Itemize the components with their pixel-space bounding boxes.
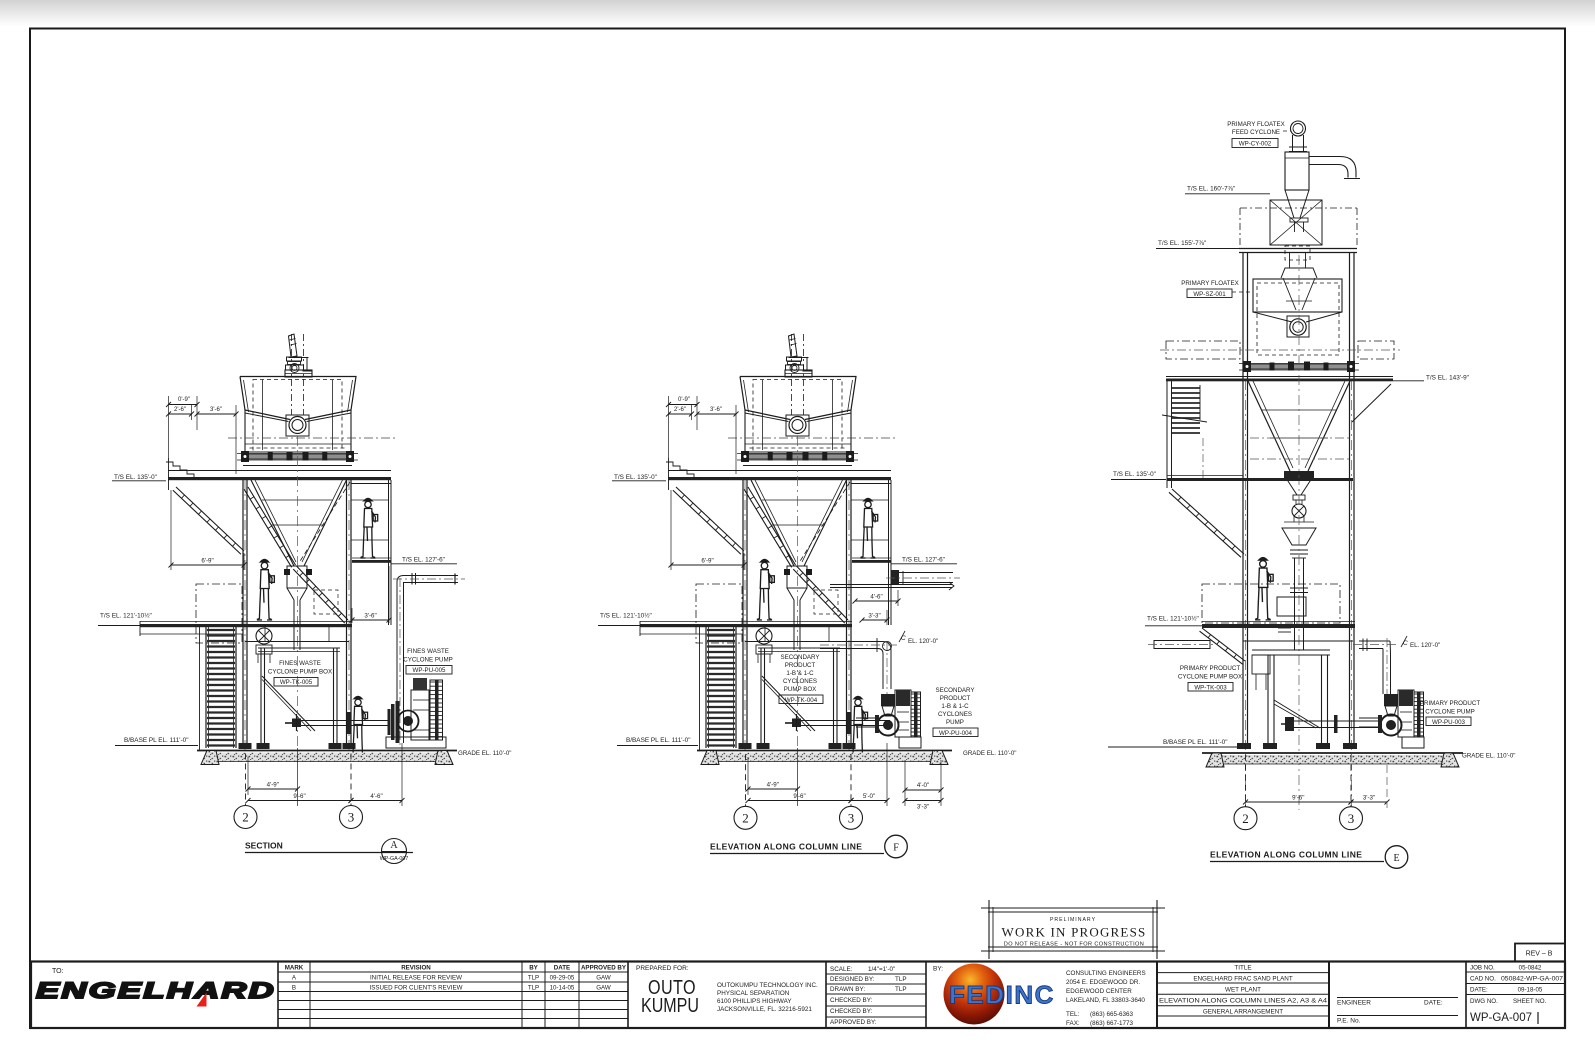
svg-text:GRADE EL. 110'-0": GRADE EL. 110'-0" [963,750,1016,757]
svg-text:CAD NO.: CAD NO. [1470,976,1496,983]
svg-text:(863) 667-1773: (863) 667-1773 [1090,1020,1134,1027]
svg-text:T/S EL. 127'-6": T/S EL. 127'-6" [402,557,445,564]
svg-text:T/S EL. 160'-7⅞": T/S EL. 160'-7⅞" [1187,186,1235,193]
svg-text:WP-CY-002: WP-CY-002 [1239,141,1272,148]
svg-text:TLP: TLP [528,975,539,982]
svg-text:CYCLONE PUMP: CYCLONE PUMP [1425,709,1475,716]
svg-text:REV – B: REV – B [1526,951,1553,958]
svg-text:GAW: GAW [596,975,611,982]
svg-text:2'-6": 2'-6" [174,407,186,413]
svg-text:09-29-05: 09-29-05 [550,975,575,982]
svg-text:B/BASE PL EL. 111'-0": B/BASE PL EL. 111'-0" [1163,739,1227,746]
svg-text:3'-3": 3'-3" [1363,795,1375,802]
svg-text:T/S EL. 135'-0": T/S EL. 135'-0" [1113,471,1156,478]
svg-text:MARK: MARK [285,965,304,972]
svg-text:10-14-05: 10-14-05 [550,985,575,992]
svg-text:ENGELHARD: ENGELHARD [36,978,276,1003]
svg-text:FINES WASTE: FINES WASTE [279,660,321,667]
svg-text:PUMP BOX: PUMP BOX [784,686,817,693]
svg-text:WP-PU-004: WP-PU-004 [939,730,973,737]
svg-text:6100 PHILLIPS HIGHWAY: 6100 PHILLIPS HIGHWAY [717,998,792,1005]
svg-text:WP-TK-004: WP-TK-004 [785,697,818,704]
svg-text:WP-PU-005: WP-PU-005 [412,667,446,674]
svg-text:05-0842: 05-0842 [1519,965,1542,972]
svg-text:9'-6": 9'-6" [793,793,805,800]
svg-text:09-18-05: 09-18-05 [1518,987,1543,994]
svg-text:PREPARED FOR:: PREPARED FOR: [636,965,689,972]
svg-text:REVISION: REVISION [401,965,431,972]
svg-text:LAKELAND, FL 33803-3640: LAKELAND, FL 33803-3640 [1066,997,1145,1004]
svg-text:C: C [901,635,906,642]
svg-text:3: 3 [348,810,355,825]
svg-text:PRIMARY FLOATEX: PRIMARY FLOATEX [1227,121,1284,128]
svg-text:T/S EL. 121'-10½": T/S EL. 121'-10½" [1147,615,1199,623]
svg-text:PRIMARY PRODUCT: PRIMARY PRODUCT [1420,700,1480,707]
svg-text:2'-6": 2'-6" [674,407,686,413]
svg-text:SECONDARY: SECONDARY [935,687,974,694]
svg-text:DO NOT RELEASE - NOT FOR CONST: DO NOT RELEASE - NOT FOR CONSTRUCTION [1004,942,1144,948]
svg-text:2: 2 [742,810,749,825]
svg-text:SECTION: SECTION [245,841,283,851]
svg-text:050842-WP-GA-007: 050842-WP-GA-007 [1501,977,1564,983]
svg-text:PRELIMINARY: PRELIMINARY [1050,917,1096,923]
svg-text:EDGEWOOD CENTER: EDGEWOOD CENTER [1066,988,1132,995]
svg-text:0'-9": 0'-9" [178,397,190,403]
svg-text:CONSULTING ENGINEERS: CONSULTING ENGINEERS [1066,970,1146,977]
svg-text:9'-6": 9'-6" [293,793,305,800]
svg-text:ELEVATION ALONG COLUMN LINES A: ELEVATION ALONG COLUMN LINES A2, A3 & A4 [1159,998,1328,1005]
svg-text:T/S EL. 155'-7⅞": T/S EL. 155'-7⅞" [1158,240,1206,247]
svg-text:A: A [390,840,398,851]
svg-text:0'-9": 0'-9" [678,397,690,403]
svg-text:SECONDARY: SECONDARY [780,654,819,661]
svg-text:DATE: DATE [554,965,570,972]
svg-text:INITIAL RELEASE FOR REVIEW: INITIAL RELEASE FOR REVIEW [370,975,462,982]
svg-text:TITLE: TITLE [1234,965,1251,972]
svg-text:CHECKED BY:: CHECKED BY: [830,1008,873,1015]
svg-text:GENERAL ARRANGEMENT: GENERAL ARRANGEMENT [1203,1009,1283,1016]
svg-text:WORK IN PROGRESS: WORK IN PROGRESS [1002,925,1147,940]
svg-text:3'-6": 3'-6" [210,407,222,413]
svg-text:2: 2 [1242,811,1249,826]
svg-text:PRODUCT: PRODUCT [940,695,971,702]
svg-text:DATE:: DATE: [1424,1000,1443,1007]
svg-text:FEED CYCLONE: FEED CYCLONE [1232,129,1280,136]
svg-text:ENGELHARD FRAC SAND PLANT: ENGELHARD FRAC SAND PLANT [1193,976,1293,983]
svg-text:F: F [893,843,899,854]
svg-text:T/S EL. 127'-6": T/S EL. 127'-6" [902,557,945,564]
svg-text:(863) 665-6363: (863) 665-6363 [1090,1011,1134,1018]
svg-text:APPROVED BY: APPROVED BY [581,965,627,972]
svg-text:TO:: TO: [52,968,64,975]
svg-text:4'-6": 4'-6" [870,594,882,601]
svg-text:FEDINC: FEDINC [949,982,1055,1010]
svg-text:3'-6": 3'-6" [710,407,722,413]
svg-text:CYCLONE PUMP BOX: CYCLONE PUMP BOX [268,669,332,676]
svg-text:ENGINEER: ENGINEER [1337,1000,1371,1007]
svg-text:GRADE EL. 110'-0": GRADE EL. 110'-0" [458,750,511,757]
svg-text:FINES WASTE: FINES WASTE [407,648,449,655]
svg-text:1/4"=1'-0": 1/4"=1'-0" [868,966,895,973]
svg-text:6'-9": 6'-9" [201,558,213,565]
svg-text:EL. 120'-0": EL. 120'-0" [1410,642,1440,649]
svg-text:PRIMARY FLOATEX: PRIMARY FLOATEX [1181,280,1238,287]
svg-text:PRIMARY PRODUCT: PRIMARY PRODUCT [1180,665,1240,672]
svg-text:T/S EL. 135'-0": T/S EL. 135'-0" [614,474,657,481]
svg-text:KUMPU: KUMPU [641,995,699,1017]
svg-text:4'-9": 4'-9" [267,782,279,789]
svg-text:JACKSONVILLE, FL. 32216-5921: JACKSONVILLE, FL. 32216-5921 [717,1006,812,1013]
svg-text:GAW: GAW [596,985,611,992]
svg-text:4'-9": 4'-9" [767,782,779,789]
svg-text:EL. 120'-0": EL. 120'-0" [908,638,938,645]
svg-text:T/S EL. 135'-0": T/S EL. 135'-0" [114,474,157,481]
svg-text:4'-0": 4'-0" [917,782,929,789]
svg-text:JOB NO.: JOB NO. [1470,965,1495,972]
svg-text:TLP: TLP [528,985,539,992]
svg-text:WP-SZ-001: WP-SZ-001 [1193,291,1226,298]
svg-text:CYCLONES: CYCLONES [783,678,817,685]
svg-text:B/BASE PL EL. 111'-0": B/BASE PL EL. 111'-0" [124,737,188,744]
svg-text:WP-TK-003: WP-TK-003 [1194,684,1227,691]
svg-text:E: E [1393,853,1399,864]
svg-text:2054 E. EDGEWOOD DR.: 2054 E. EDGEWOOD DR. [1066,979,1140,986]
svg-text:ELEVATION ALONG COLUMN LINE: ELEVATION ALONG COLUMN LINE [1210,850,1362,860]
svg-text:DWG NO.: DWG NO. [1470,998,1498,1005]
svg-text:DRAWN BY:: DRAWN BY: [830,986,865,993]
svg-text:CYCLONES: CYCLONES [938,711,972,718]
svg-text:B: B [292,985,296,992]
svg-text:SCALE:: SCALE: [830,966,853,973]
svg-text:CYCLONE PUMP: CYCLONE PUMP [403,657,453,664]
svg-text:BY:: BY: [933,966,943,973]
svg-text:PRODUCT: PRODUCT [785,662,816,669]
svg-text:PHYSICAL SEPARATION: PHYSICAL SEPARATION [717,990,790,997]
svg-text:WET PLANT: WET PLANT [1225,987,1261,994]
svg-text:WP-PU-003: WP-PU-003 [1432,719,1466,726]
svg-text:CYCLONE PUMP BOX: CYCLONE PUMP BOX [1178,674,1242,681]
svg-text:WP-GA-007: WP-GA-007 [1470,1012,1532,1024]
svg-text:DATE:: DATE: [1470,987,1488,994]
svg-text:FAX:: FAX: [1066,1020,1080,1027]
svg-text:C: C [1403,640,1408,647]
svg-text:4'-6": 4'-6" [370,793,382,800]
svg-text:T/S EL. 121'-10½": T/S EL. 121'-10½" [100,612,152,620]
svg-text:3'-3": 3'-3" [917,804,929,811]
svg-text:BY: BY [529,965,538,972]
svg-text:B/BASE PL EL. 111'-0": B/BASE PL EL. 111'-0" [626,737,690,744]
svg-text:CHECKED BY:: CHECKED BY: [830,997,873,1004]
svg-text:1-B & 1-C: 1-B & 1-C [941,703,969,710]
svg-text:PUMP: PUMP [946,719,964,726]
svg-text:3'-3": 3'-3" [868,613,880,620]
svg-text:TEL:: TEL: [1066,1011,1080,1018]
svg-text:APPROVED BY:: APPROVED BY: [830,1019,877,1026]
svg-text:ELEVATION ALONG COLUMN LINE: ELEVATION ALONG COLUMN LINE [710,842,862,852]
svg-text:TLP: TLP [895,986,907,993]
svg-text:TLP: TLP [895,976,907,983]
svg-text:OUTOKUMPU TECHNOLOGY INC.: OUTOKUMPU TECHNOLOGY INC. [717,982,818,989]
svg-text:5'-0": 5'-0" [863,793,875,800]
svg-text:3'-6": 3'-6" [364,613,376,620]
svg-text:GRADE EL. 110'-0": GRADE EL. 110'-0" [1462,753,1515,760]
svg-text:DESIGNED BY:: DESIGNED BY: [830,976,875,983]
svg-text:3: 3 [1348,811,1355,826]
svg-text:T/S EL. 143'-9": T/S EL. 143'-9" [1426,375,1469,382]
svg-text:6'-9": 6'-9" [701,558,713,565]
svg-text:T/S EL. 121'-10½": T/S EL. 121'-10½" [600,612,652,620]
svg-text:WP-TK-005: WP-TK-005 [280,679,313,686]
svg-text:ISSUED FOR CLIENT'S REVIEW: ISSUED FOR CLIENT'S REVIEW [370,985,463,992]
svg-text:2: 2 [242,810,249,825]
svg-text:WP-GA-007: WP-GA-007 [380,856,409,862]
svg-text:3: 3 [848,810,855,825]
svg-text:1-B & 1-C: 1-B & 1-C [786,670,814,677]
svg-text:9'-6": 9'-6" [1292,795,1304,802]
svg-text:P.E. No.: P.E. No. [1337,1018,1361,1025]
svg-text:SHEET NO.: SHEET NO. [1513,998,1547,1005]
